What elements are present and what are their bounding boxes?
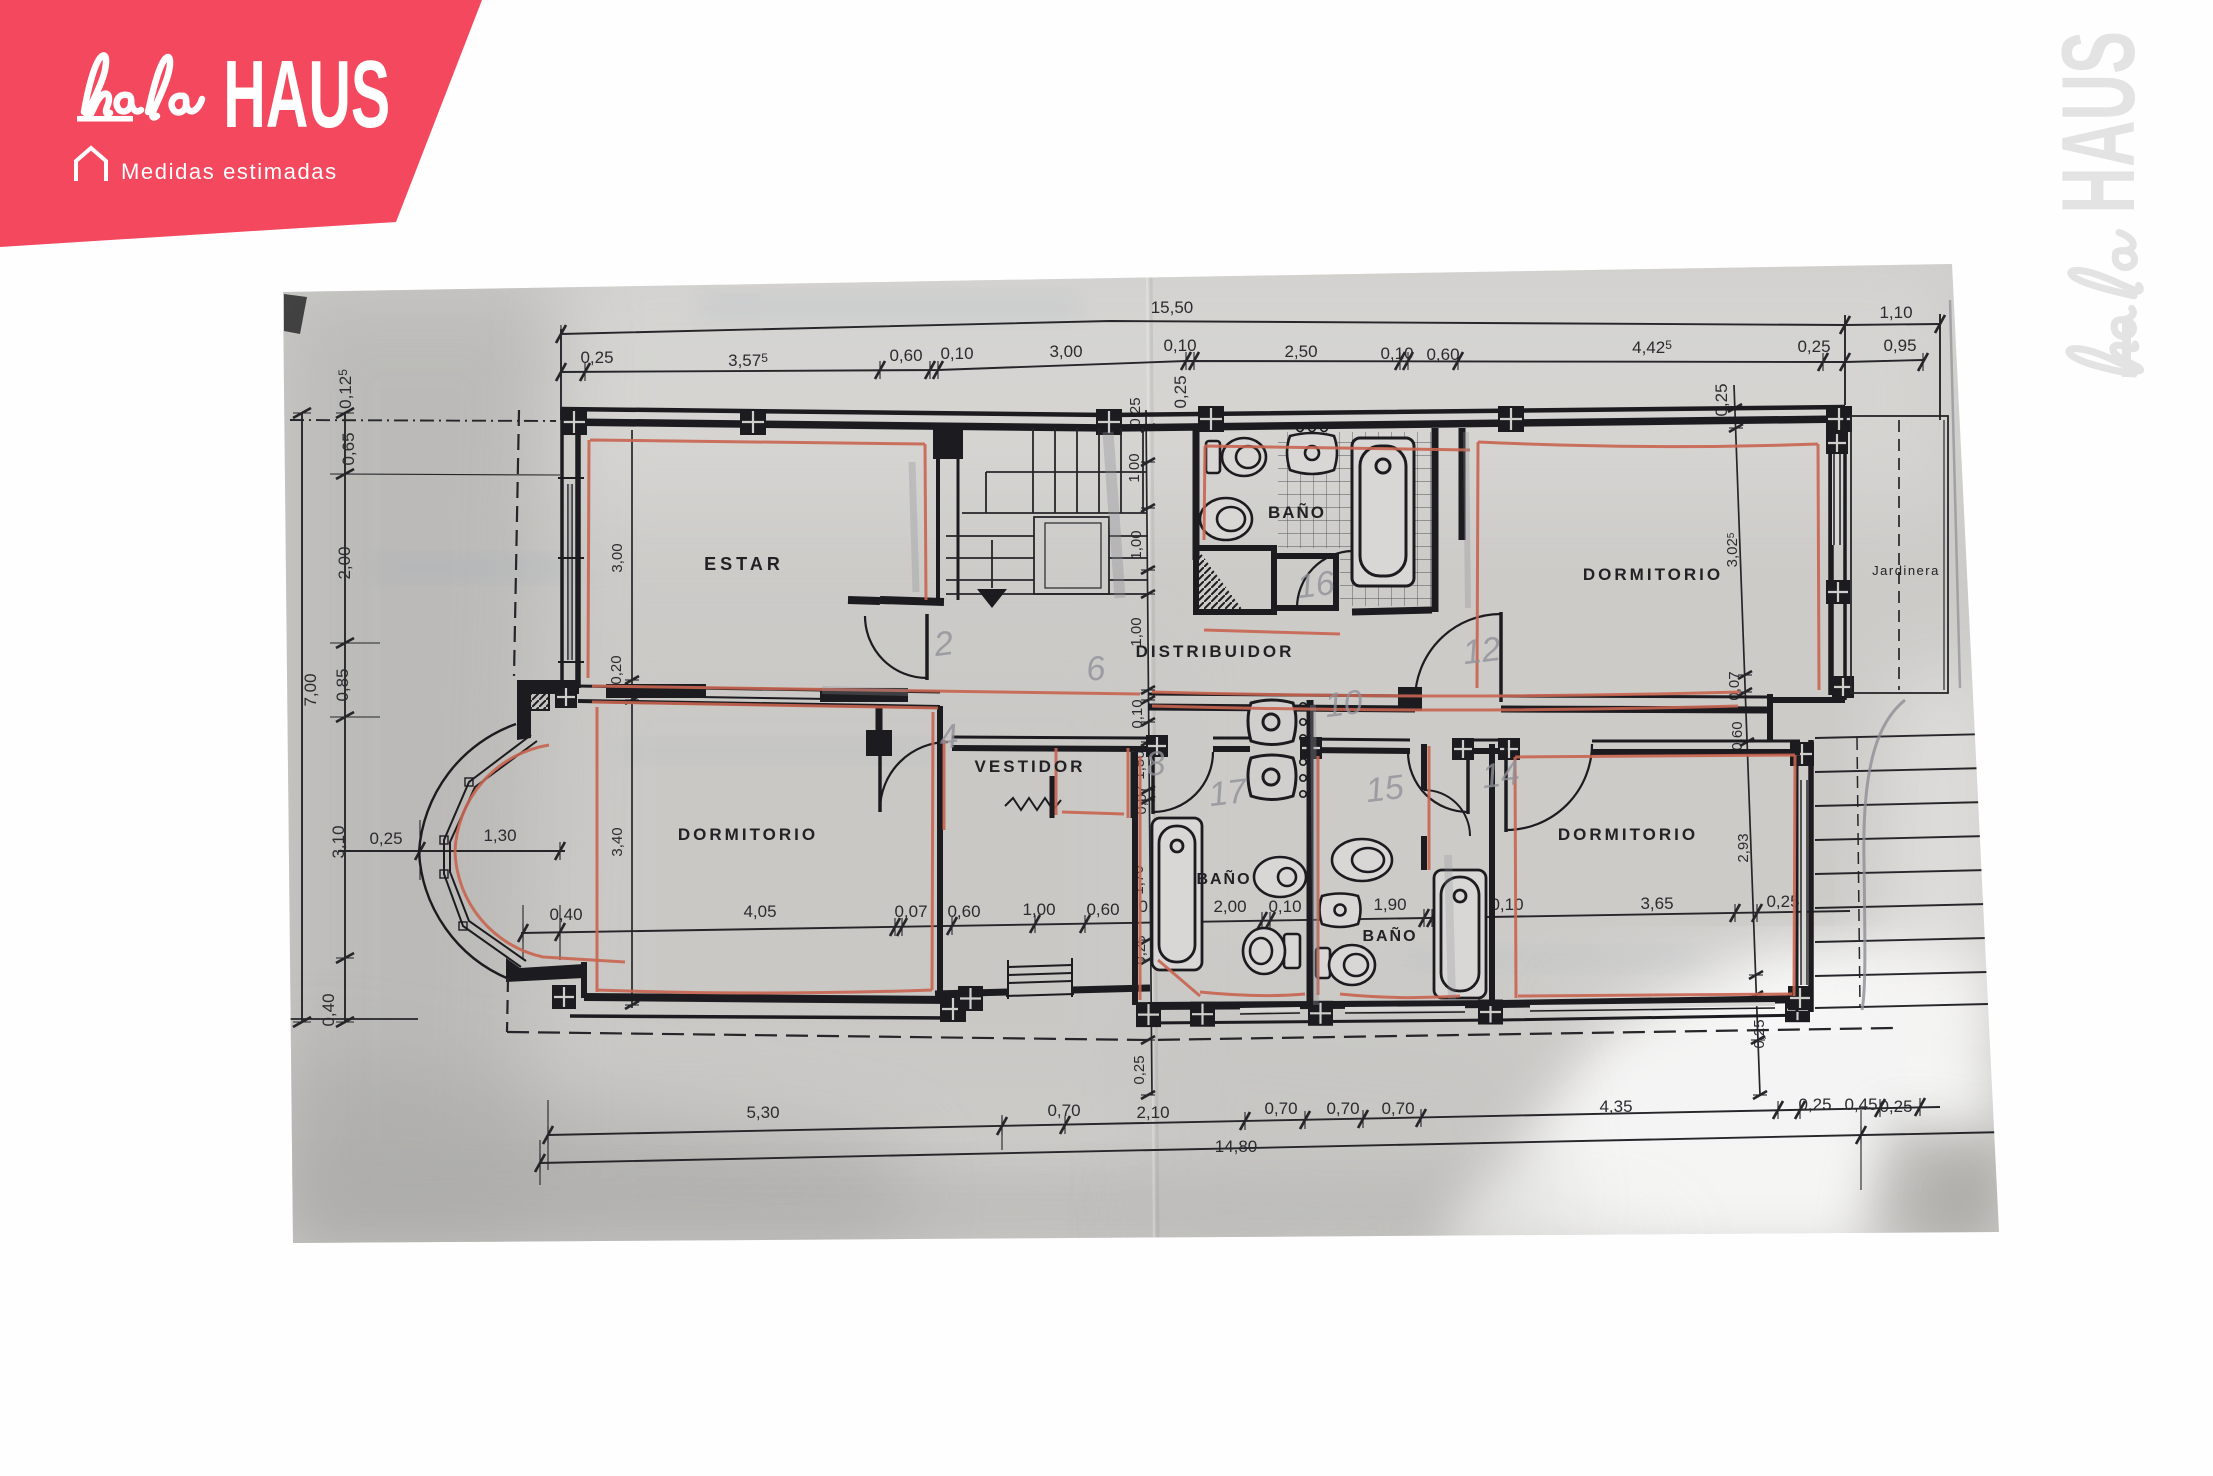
- svg-text:3,40: 3,40: [609, 827, 626, 856]
- svg-text:0,10: 0,10: [940, 344, 973, 363]
- svg-text:2,10: 2,10: [1136, 1103, 1169, 1122]
- svg-text:0,70: 0,70: [1326, 1099, 1359, 1118]
- svg-text:BAÑO: BAÑO: [1362, 925, 1417, 945]
- svg-text:HAUS: HAUS: [2041, 31, 2156, 214]
- svg-text:1,00: 1,00: [1126, 453, 1143, 482]
- svg-text:10: 10: [1323, 683, 1365, 725]
- svg-text:0,10: 0,10: [1163, 336, 1196, 355]
- svg-text:14,80: 14,80: [1215, 1137, 1258, 1156]
- svg-text:0,60: 0,60: [889, 346, 922, 365]
- svg-text:1,00: 1,00: [1022, 900, 1055, 919]
- svg-text:0,25: 0,25: [580, 348, 613, 367]
- svg-text:5,30: 5,30: [746, 1103, 779, 1122]
- svg-text:0,60: 0,60: [1729, 721, 1746, 750]
- svg-text:0,60: 0,60: [947, 902, 980, 921]
- svg-text:Medidas estimadas: Medidas estimadas: [121, 159, 338, 184]
- svg-text:0,25: 0,25: [1171, 375, 1190, 408]
- svg-text:0,70: 0,70: [1047, 1101, 1080, 1120]
- svg-text:2,93: 2,93: [1735, 833, 1752, 862]
- svg-text:0,07: 0,07: [894, 902, 927, 921]
- svg-text:0,70: 0,70: [1264, 1099, 1297, 1118]
- svg-text:1,30: 1,30: [483, 826, 516, 845]
- svg-text:0,40: 0,40: [549, 905, 582, 924]
- svg-text:0,25: 0,25: [1879, 1097, 1912, 1116]
- svg-text:2,50: 2,50: [1284, 342, 1317, 361]
- svg-text:3,10: 3,10: [329, 825, 348, 858]
- svg-text:0,25: 0,25: [1798, 1095, 1831, 1114]
- svg-text:0,85: 0,85: [333, 668, 352, 701]
- svg-text:0,40: 0,40: [319, 993, 338, 1026]
- svg-text:0,10: 0,10: [1129, 699, 1146, 728]
- svg-text:0,25: 0,25: [1797, 337, 1830, 356]
- svg-text:0,65: 0,65: [339, 432, 358, 465]
- svg-text:DORMITORIO: DORMITORIO: [1558, 825, 1698, 844]
- svg-text:1,90: 1,90: [1373, 895, 1406, 914]
- svg-text:DORMITORIO: DORMITORIO: [678, 825, 818, 844]
- svg-text:0,25: 0,25: [369, 829, 402, 848]
- svg-text:0,60: 0,60: [1086, 900, 1119, 919]
- svg-text:0,25: 0,25: [1751, 1019, 1768, 1048]
- svg-text:1,10: 1,10: [1879, 303, 1912, 322]
- svg-text:15,50: 15,50: [1151, 298, 1194, 317]
- svg-text:ESTAR: ESTAR: [704, 554, 784, 574]
- svg-text:BAÑO: BAÑO: [1268, 502, 1326, 522]
- svg-text:0,10: 0,10: [1268, 897, 1301, 916]
- svg-text:3,00: 3,00: [609, 543, 626, 572]
- svg-text:4,35: 4,35: [1599, 1097, 1632, 1116]
- svg-text:0,20: 0,20: [608, 655, 625, 684]
- svg-text:Jardinera: Jardinera: [1872, 563, 1940, 578]
- svg-text:2,00: 2,00: [1213, 897, 1246, 916]
- svg-text:1,00: 1,00: [1128, 530, 1145, 559]
- svg-text:12: 12: [1461, 630, 1503, 672]
- svg-text:VESTIDOR: VESTIDOR: [975, 757, 1086, 776]
- svg-text:0,10: 0,10: [1490, 895, 1523, 914]
- svg-text:17: 17: [1207, 772, 1250, 814]
- svg-text:7,00: 7,00: [301, 673, 320, 706]
- svg-text:DORMITORIO: DORMITORIO: [1583, 565, 1723, 584]
- svg-text:0,95: 0,95: [1883, 336, 1916, 355]
- svg-text:0,25: 0,25: [1127, 397, 1144, 426]
- svg-text:16: 16: [1295, 564, 1337, 606]
- svg-text:BAÑO: BAÑO: [1196, 868, 1251, 888]
- svg-text:3,65: 3,65: [1640, 894, 1673, 913]
- svg-text:0,70: 0,70: [1381, 1099, 1414, 1118]
- svg-text:15: 15: [1364, 768, 1406, 810]
- svg-text:4,05: 4,05: [743, 902, 776, 921]
- svg-text:3,00: 3,00: [1049, 342, 1082, 361]
- svg-text:0,10: 0,10: [1380, 344, 1413, 363]
- svg-text:14: 14: [1480, 754, 1522, 796]
- svg-text:DISTRIBUIDOR: DISTRIBUIDOR: [1136, 642, 1295, 661]
- svg-text:0,60: 0,60: [1426, 345, 1459, 364]
- svg-text:HAUS: HAUS: [223, 40, 390, 148]
- svg-text:0,25: 0,25: [1131, 1055, 1148, 1084]
- svg-text:2,00: 2,00: [335, 546, 354, 579]
